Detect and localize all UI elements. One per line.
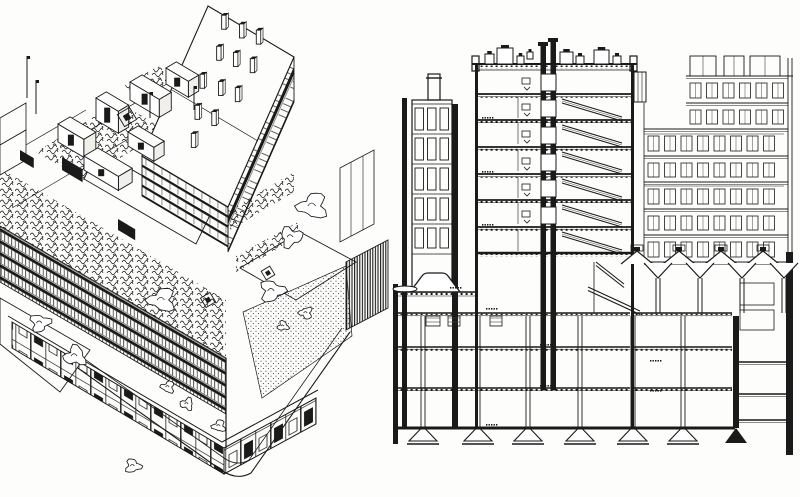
storage-box [426, 316, 440, 326]
skylight-dark [760, 247, 766, 251]
rooftop-plant-cap [615, 53, 619, 56]
window [428, 168, 437, 190]
window [415, 168, 424, 190]
annotation-mark [543, 344, 544, 346]
scanned-page [0, 0, 800, 497]
annotation-mark [485, 171, 486, 173]
annotation-mark [655, 390, 656, 392]
storage-box [490, 316, 502, 326]
stair-flight [562, 129, 622, 147]
window [428, 228, 437, 248]
lift-door [541, 100, 556, 117]
stair-flight [562, 156, 622, 174]
funnel-column-head [644, 263, 672, 278]
annotation-mark [550, 385, 551, 387]
tree-symbol [160, 381, 174, 394]
mezzanine-stair [596, 266, 624, 288]
roof-stack-side [240, 85, 242, 101]
annotation-mark [487, 224, 488, 226]
column-footing-cone [464, 429, 492, 441]
stair-flight [562, 154, 622, 172]
cut-wall [475, 64, 478, 428]
annotation-mark [660, 390, 661, 392]
roof-stack-side [200, 103, 202, 119]
roof-stack [233, 52, 238, 66]
roof-stack-side [226, 13, 228, 29]
rooftop-plant-box [613, 56, 621, 64]
sawtooth-roof [705, 251, 737, 264]
rooftop-plant-box [560, 52, 573, 64]
joist-ticks [398, 293, 475, 296]
annotation-mark [548, 344, 549, 346]
column-footing-cone [619, 429, 647, 441]
column-footing-cone [514, 429, 542, 441]
annotation-mark [487, 171, 488, 173]
joist-ticks [478, 175, 631, 178]
annotation-mark [490, 117, 491, 119]
joist-ticks [478, 121, 631, 124]
rooftop-plant-cap [563, 49, 570, 52]
mast-flag [27, 56, 30, 59]
cut-wall [452, 104, 458, 428]
annotation-mark [540, 385, 541, 387]
funnel-column-head [686, 263, 714, 278]
roof-stack [200, 74, 205, 88]
annotation-mark [550, 344, 551, 346]
annotation-mark [653, 360, 654, 362]
joist-ticks [478, 148, 631, 151]
stair-flight [562, 103, 622, 121]
roof-stack [222, 15, 227, 29]
funnel-column-head [728, 263, 756, 278]
window [428, 108, 437, 130]
stair-flight [562, 125, 622, 143]
lift-door [541, 154, 556, 171]
roof-stack [217, 46, 222, 60]
joist-ticks [478, 254, 631, 257]
joist-ticks [634, 348, 732, 351]
penthouse-door [174, 78, 180, 87]
shopfront-wall-right [224, 398, 316, 474]
mast-flag [36, 80, 39, 83]
window [415, 228, 424, 248]
door-mark [522, 184, 530, 190]
rooftop-plant-cap [519, 53, 523, 56]
arrow-mark [524, 113, 530, 116]
roof-stack [235, 88, 240, 102]
window [440, 198, 449, 220]
roof-stack-side [238, 50, 240, 66]
arrow-mark [524, 220, 530, 223]
column-footing-cone [409, 429, 437, 441]
roof-stack [191, 133, 196, 147]
roof-stack [256, 30, 261, 44]
sill-band [644, 186, 784, 190]
lift-door [541, 127, 556, 144]
annotation-mark [548, 385, 549, 387]
canopy-disc [393, 286, 417, 292]
annotation-mark [650, 360, 651, 362]
annotation-mark [460, 287, 461, 289]
rooftop-plant-box [517, 56, 524, 64]
cut-wall [733, 316, 739, 428]
annotation-mark [655, 360, 656, 362]
window [415, 198, 424, 220]
annotation-mark [486, 308, 487, 310]
cut-wall [538, 42, 548, 46]
stair-flight [562, 179, 622, 197]
left-neighbour-facade [412, 100, 452, 292]
cut-wall [548, 38, 558, 42]
rooftop-plant-cap [487, 51, 492, 54]
stair-flight [562, 207, 622, 225]
rooftop-plant-box [527, 52, 533, 59]
joist-ticks [478, 228, 631, 231]
lift-door [541, 207, 556, 224]
column-footing-cone [669, 429, 697, 441]
annotation-mark [545, 385, 546, 387]
annotation-mark [455, 287, 456, 289]
penthouse-door [68, 135, 74, 146]
tree-symbol [295, 193, 327, 218]
stair-flight [562, 127, 622, 145]
arrow-mark [524, 193, 530, 196]
annotation-mark [485, 224, 486, 226]
annotation-mark [490, 171, 491, 173]
annotation-mark [489, 424, 490, 426]
roof-stack-side [223, 79, 225, 95]
door-mark [522, 104, 530, 110]
stair-flight [562, 183, 622, 201]
arrow-mark [524, 167, 530, 170]
sawtooth-roof [663, 251, 695, 264]
annotation-mark [491, 308, 492, 310]
room [740, 310, 774, 330]
annotation-mark [489, 308, 490, 310]
door-mark [522, 78, 530, 84]
door-mark [522, 158, 530, 164]
annotation-mark [486, 424, 487, 426]
skylight-dark [634, 247, 640, 251]
dark-opening [118, 219, 135, 240]
roof-stack-side [261, 28, 263, 44]
roof-stack [250, 59, 255, 73]
roof-stack-side [205, 72, 207, 88]
stair-flight [562, 205, 622, 223]
window [428, 198, 437, 220]
skylight-dark [676, 247, 682, 251]
arrow-mark [524, 87, 530, 90]
joist-ticks [475, 66, 634, 70]
mast-flag [194, 86, 197, 89]
sill-band [644, 133, 784, 137]
mast-flag [150, 92, 153, 95]
louvre-screen [346, 240, 388, 330]
stair-flight [562, 236, 622, 254]
window [440, 108, 449, 130]
rooftop-plant-cap [501, 45, 509, 48]
stair-flight [562, 152, 622, 170]
penthouse-door [138, 143, 144, 150]
annotation-mark [492, 224, 493, 226]
annotation-mark [496, 308, 497, 310]
lift-door [541, 180, 556, 197]
annotation-mark [660, 360, 661, 362]
rooftop-plant-box [576, 56, 584, 64]
rooftop-plant-cap [578, 53, 582, 56]
annotation-mark [658, 360, 659, 362]
roof-stack [195, 105, 200, 119]
annotation-mark [543, 385, 544, 387]
window [440, 138, 449, 160]
annotation-mark [658, 390, 659, 392]
lift-door [541, 74, 556, 91]
annotation-mark [545, 344, 546, 346]
annotation-mark [458, 287, 459, 289]
stair-flight [562, 234, 622, 252]
annotation-mark [494, 308, 495, 310]
axonometric-drawing [0, 0, 400, 497]
annotation-mark [482, 171, 483, 173]
setback-structure [634, 72, 646, 102]
window [415, 108, 424, 130]
joist-ticks [478, 348, 630, 351]
dark-opening [20, 150, 34, 168]
stair-flight [562, 101, 622, 119]
roof-stack-side [244, 22, 246, 38]
annotation-mark [487, 117, 488, 119]
annotation-mark [492, 117, 493, 119]
mezzanine-stair [596, 262, 624, 284]
roof-stack-side [216, 109, 218, 125]
storage-box [448, 316, 460, 326]
joist-ticks [478, 95, 631, 98]
stair-flight [562, 99, 622, 117]
window [440, 228, 449, 248]
joist-ticks [634, 314, 732, 317]
rooftop-plant-cap [598, 47, 606, 50]
annotation-mark [485, 117, 486, 119]
annotation-mark [482, 224, 483, 226]
arrow-mark [524, 140, 530, 143]
annotation-mark [650, 390, 651, 392]
tree-symbol [211, 420, 226, 431]
annotation-mark [482, 117, 483, 119]
rooftop-plant-box [497, 48, 513, 64]
rooftop-plant-box [485, 54, 494, 64]
skylight-dark [718, 247, 724, 251]
annotation-mark [540, 344, 541, 346]
roof-stack-side [196, 131, 198, 147]
penthouse-door [142, 94, 148, 105]
roof-stack-side [221, 44, 223, 60]
annotation-mark [453, 287, 454, 289]
roof-stack [219, 81, 224, 95]
penthouse-door [104, 108, 110, 123]
cut-wall [786, 252, 793, 455]
section-drawing [390, 0, 800, 497]
penthouse-door [98, 169, 104, 176]
roof-stack-side [255, 56, 257, 72]
door-mark [522, 131, 530, 137]
annotation-mark [492, 171, 493, 173]
joist-ticks [478, 389, 630, 392]
door-mark [522, 211, 530, 217]
column-footing-cone [566, 429, 594, 441]
annotation-mark [653, 390, 654, 392]
roof-stack [240, 24, 245, 38]
stair-flight [562, 232, 622, 250]
stair-flight [562, 181, 622, 199]
annotation-mark [494, 424, 495, 426]
joist-ticks [478, 201, 631, 204]
window [428, 138, 437, 160]
joist-ticks [398, 348, 475, 351]
section-details [393, 38, 798, 455]
annotation-mark [450, 287, 451, 289]
stair-flight [562, 209, 622, 227]
cut-wall [631, 64, 634, 428]
joist-ticks [398, 389, 475, 392]
annotation-mark [496, 424, 497, 426]
window [440, 168, 449, 190]
rooftop-plant-cap [529, 49, 532, 52]
room [740, 283, 774, 305]
annotation-mark [491, 424, 492, 426]
rooftop-plant-box [594, 50, 609, 64]
window [415, 138, 424, 160]
footing-triangle [725, 428, 747, 443]
cut-wall [393, 284, 398, 444]
tree-symbol [180, 397, 192, 411]
cut-wall [402, 98, 407, 428]
roof-stack [212, 112, 217, 126]
funnel-column-head [770, 263, 798, 278]
joist-ticks [634, 389, 732, 392]
annotation-mark [490, 224, 491, 226]
pergola-frame [340, 150, 374, 242]
